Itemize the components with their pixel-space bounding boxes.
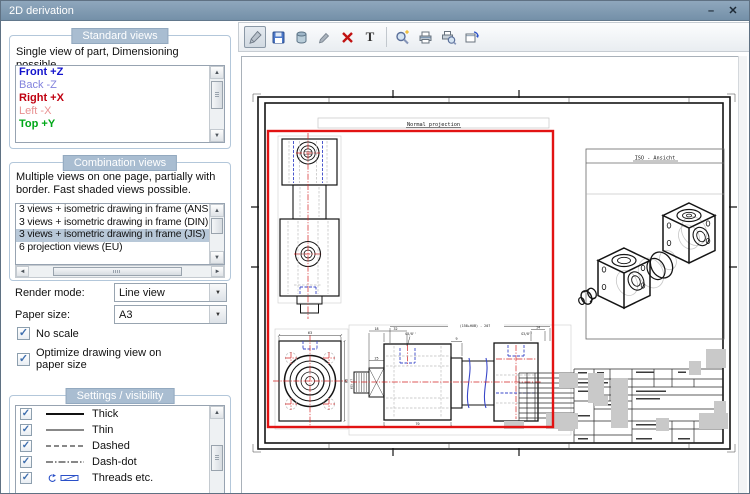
dim-9: 9 xyxy=(455,337,457,341)
standard-views-list: Front +Z Back -Z Right +X Left -X Top +Y… xyxy=(15,65,225,143)
threads-icon xyxy=(44,473,86,483)
titlebar: 2D derivation – ✕ xyxy=(1,1,749,21)
preview-scrollbar[interactable] xyxy=(738,56,747,493)
optimize-label: Optimize drawing view on paper size xyxy=(36,347,176,371)
setting-row-threads[interactable]: ✓ Threads etc. xyxy=(16,470,224,486)
iso-right-block xyxy=(663,203,715,263)
no-scale-label: No scale xyxy=(36,328,79,340)
dashdot-checkbox[interactable]: ✓ xyxy=(20,456,32,468)
check-icon: ✓ xyxy=(22,408,30,419)
drawing-preview: Normal projection xyxy=(242,57,740,494)
render-mode-select[interactable]: Line view ▼ xyxy=(114,283,227,302)
top-view xyxy=(278,133,341,319)
combination-views-description: Multiple views on one page, partially wi… xyxy=(16,171,224,197)
pen-icon xyxy=(247,29,264,46)
settings-list: ✓ Thick ✓ Thin ✓ Dashed ✓ Dash-d xyxy=(15,405,225,494)
dim-shaft: Ø25 f7 xyxy=(349,379,354,389)
draw-button[interactable] xyxy=(313,26,335,48)
page-setup-button[interactable] xyxy=(460,26,482,48)
dim-85: 85 xyxy=(345,379,349,383)
setting-row-thick[interactable]: ✓ Thick xyxy=(16,406,224,422)
scroll-up-icon[interactable]: ▲ xyxy=(210,66,224,79)
optimize-row: ✓ Optimize drawing view on paper size xyxy=(17,347,176,371)
vertical-scrollbar[interactable]: ▲ ▼ xyxy=(209,66,224,142)
scroll-thumb[interactable] xyxy=(211,218,223,234)
scroll-thumb[interactable] xyxy=(211,445,223,471)
chevron-down-icon[interactable]: ▼ xyxy=(209,284,226,301)
check-icon: ✓ xyxy=(22,440,30,451)
list-item-front[interactable]: Front +Z xyxy=(16,66,224,79)
thin-line-icon xyxy=(44,426,86,434)
threads-checkbox[interactable]: ✓ xyxy=(20,472,32,484)
setting-label: Threads etc. xyxy=(92,472,153,484)
dim-total: (158+HUB) - 207 xyxy=(460,324,491,328)
group-header: Standard views xyxy=(71,28,168,44)
group-standard-views: Standard views Single view of part, Dime… xyxy=(9,35,231,149)
list-item-left[interactable]: Left -X xyxy=(16,105,224,118)
iso-shaft xyxy=(578,287,598,306)
pen-small-icon xyxy=(316,29,333,46)
check-icon: ✓ xyxy=(22,456,30,467)
thick-checkbox[interactable]: ✓ xyxy=(20,408,32,420)
text-button[interactable]: T xyxy=(359,26,381,48)
close-button[interactable]: ✕ xyxy=(725,4,741,17)
window-title: 2D derivation xyxy=(9,5,697,17)
minimize-button[interactable]: – xyxy=(703,5,719,17)
scroll-thumb[interactable] xyxy=(211,81,223,109)
optimize-checkbox[interactable]: ✓ xyxy=(17,353,30,366)
export-button[interactable] xyxy=(290,26,312,48)
dim-g38-left: G3/8'' xyxy=(405,332,417,336)
list-item-jis-selected[interactable]: 3 views + isometric drawing in frame (JI… xyxy=(16,229,209,242)
horizontal-scrollbar[interactable]: ◄ ► xyxy=(15,265,225,278)
setting-row-dashdot[interactable]: ✓ Dash-dot xyxy=(16,454,224,470)
print-preview-button[interactable] xyxy=(437,26,459,48)
vertical-scrollbar[interactable]: ▲ ▼ xyxy=(209,204,224,264)
setting-label: Dashed xyxy=(92,440,130,452)
database-icon xyxy=(293,29,310,46)
dashed-checkbox[interactable]: ✓ xyxy=(20,440,32,452)
check-icon: ✓ xyxy=(22,472,30,483)
paper-size-label: Paper size: xyxy=(15,309,70,321)
scroll-track[interactable] xyxy=(210,419,224,494)
scroll-track[interactable] xyxy=(210,79,224,129)
preview-toolbar: T xyxy=(238,22,750,52)
text-icon: T xyxy=(366,29,375,45)
dim-14: 14 xyxy=(536,325,540,329)
toolbar-separator xyxy=(386,27,387,47)
zoom-icon xyxy=(394,29,411,46)
setting-row-thin[interactable]: ✓ Thin xyxy=(16,422,224,438)
render-mode-label: Render mode: xyxy=(15,287,85,299)
zoom-button[interactable] xyxy=(391,26,413,48)
scroll-track[interactable] xyxy=(29,266,211,277)
paper-size-select[interactable]: A3 ▼ xyxy=(114,305,227,324)
setting-label: Thick xyxy=(92,408,118,420)
group-header: Combination views xyxy=(63,155,177,171)
iso-view: ISO - Ansicht xyxy=(578,149,724,339)
group-settings-visibility: Settings / visibility ✓ Thick ✓ Thin ✓ D… xyxy=(9,395,231,494)
chevron-down-icon[interactable]: ▼ xyxy=(209,306,226,323)
delete-button[interactable] xyxy=(336,26,358,48)
iso-left-block xyxy=(598,248,650,308)
drawing-preview-panel[interactable]: Normal projection xyxy=(241,56,740,494)
options-panel: Standard views Single view of part, Dime… xyxy=(1,21,239,493)
group-header: Settings / visibility xyxy=(66,388,175,404)
thick-line-icon xyxy=(44,410,86,418)
list-item-ansi[interactable]: 3 views + isometric drawing in frame (AN… xyxy=(16,204,209,217)
normal-projection-text: Normal projection xyxy=(407,122,460,128)
flange-view: 63 85 xyxy=(273,329,349,429)
scroll-up-icon[interactable]: ▲ xyxy=(210,204,224,217)
iso-hidden-detail xyxy=(612,212,711,299)
edit-button[interactable] xyxy=(244,26,266,48)
scroll-right-icon[interactable]: ► xyxy=(211,266,224,277)
scroll-up-icon[interactable]: ▲ xyxy=(210,406,224,419)
no-scale-checkbox[interactable]: ✓ xyxy=(17,327,30,340)
normal-projection-label: Normal projection xyxy=(318,118,549,128)
list-item-eu[interactable]: 6 projection views (EU) xyxy=(16,242,209,255)
setting-label: Dash-dot xyxy=(92,456,137,468)
delete-icon xyxy=(339,29,356,46)
dim-18: 18 xyxy=(374,327,378,331)
print-icon xyxy=(417,29,434,46)
scroll-down-icon[interactable]: ▼ xyxy=(210,251,224,264)
vertical-scrollbar[interactable]: ▲ ▼ xyxy=(209,406,224,494)
list-item-back[interactable]: Back -Z xyxy=(16,79,224,92)
paper-size-value: A3 xyxy=(115,309,209,321)
check-icon: ✓ xyxy=(22,424,30,435)
combination-views-list: 3 views + isometric drawing in frame (AN… xyxy=(15,203,225,265)
print-preview-icon xyxy=(440,29,457,46)
list-item-top[interactable]: Top +Y xyxy=(16,118,224,131)
dashdot-line-icon xyxy=(44,458,86,466)
scroll-down-icon[interactable]: ▼ xyxy=(210,129,224,142)
page-setup-icon xyxy=(463,29,480,46)
iso-view-text: ISO - Ansicht xyxy=(635,156,676,162)
group-combination-views: Combination views Multiple views on one … xyxy=(9,162,231,281)
save-button[interactable] xyxy=(267,26,289,48)
dashed-line-icon xyxy=(44,442,86,450)
list-item-right[interactable]: Right +X xyxy=(16,92,224,105)
scroll-track[interactable] xyxy=(210,217,224,251)
setting-label: Thin xyxy=(92,424,113,436)
no-scale-row: ✓ No scale xyxy=(17,327,79,340)
list-item-din[interactable]: 3 views + isometric drawing in frame (DI… xyxy=(16,217,209,230)
check-icon: ✓ xyxy=(19,352,28,365)
scroll-thumb[interactable] xyxy=(53,267,182,276)
check-icon: ✓ xyxy=(19,326,28,339)
dim-g38-right: G3/8'' xyxy=(521,332,533,336)
print-button[interactable] xyxy=(414,26,436,48)
render-mode-value: Line view xyxy=(115,287,209,299)
dim-25: 25 xyxy=(374,356,378,360)
save-icon xyxy=(270,29,287,46)
dim-70: 70 xyxy=(415,422,419,426)
thin-checkbox[interactable]: ✓ xyxy=(20,424,32,436)
selection-rect[interactable] xyxy=(268,131,553,427)
setting-row-dashed[interactable]: ✓ Dashed xyxy=(16,438,224,454)
scroll-left-icon[interactable]: ◄ xyxy=(16,266,29,277)
dim-63: 63 xyxy=(308,331,312,335)
2d-derivation-dialog: 2D derivation – ✕ Standard views Single … xyxy=(0,0,750,494)
dim-32: 32 xyxy=(393,327,397,331)
